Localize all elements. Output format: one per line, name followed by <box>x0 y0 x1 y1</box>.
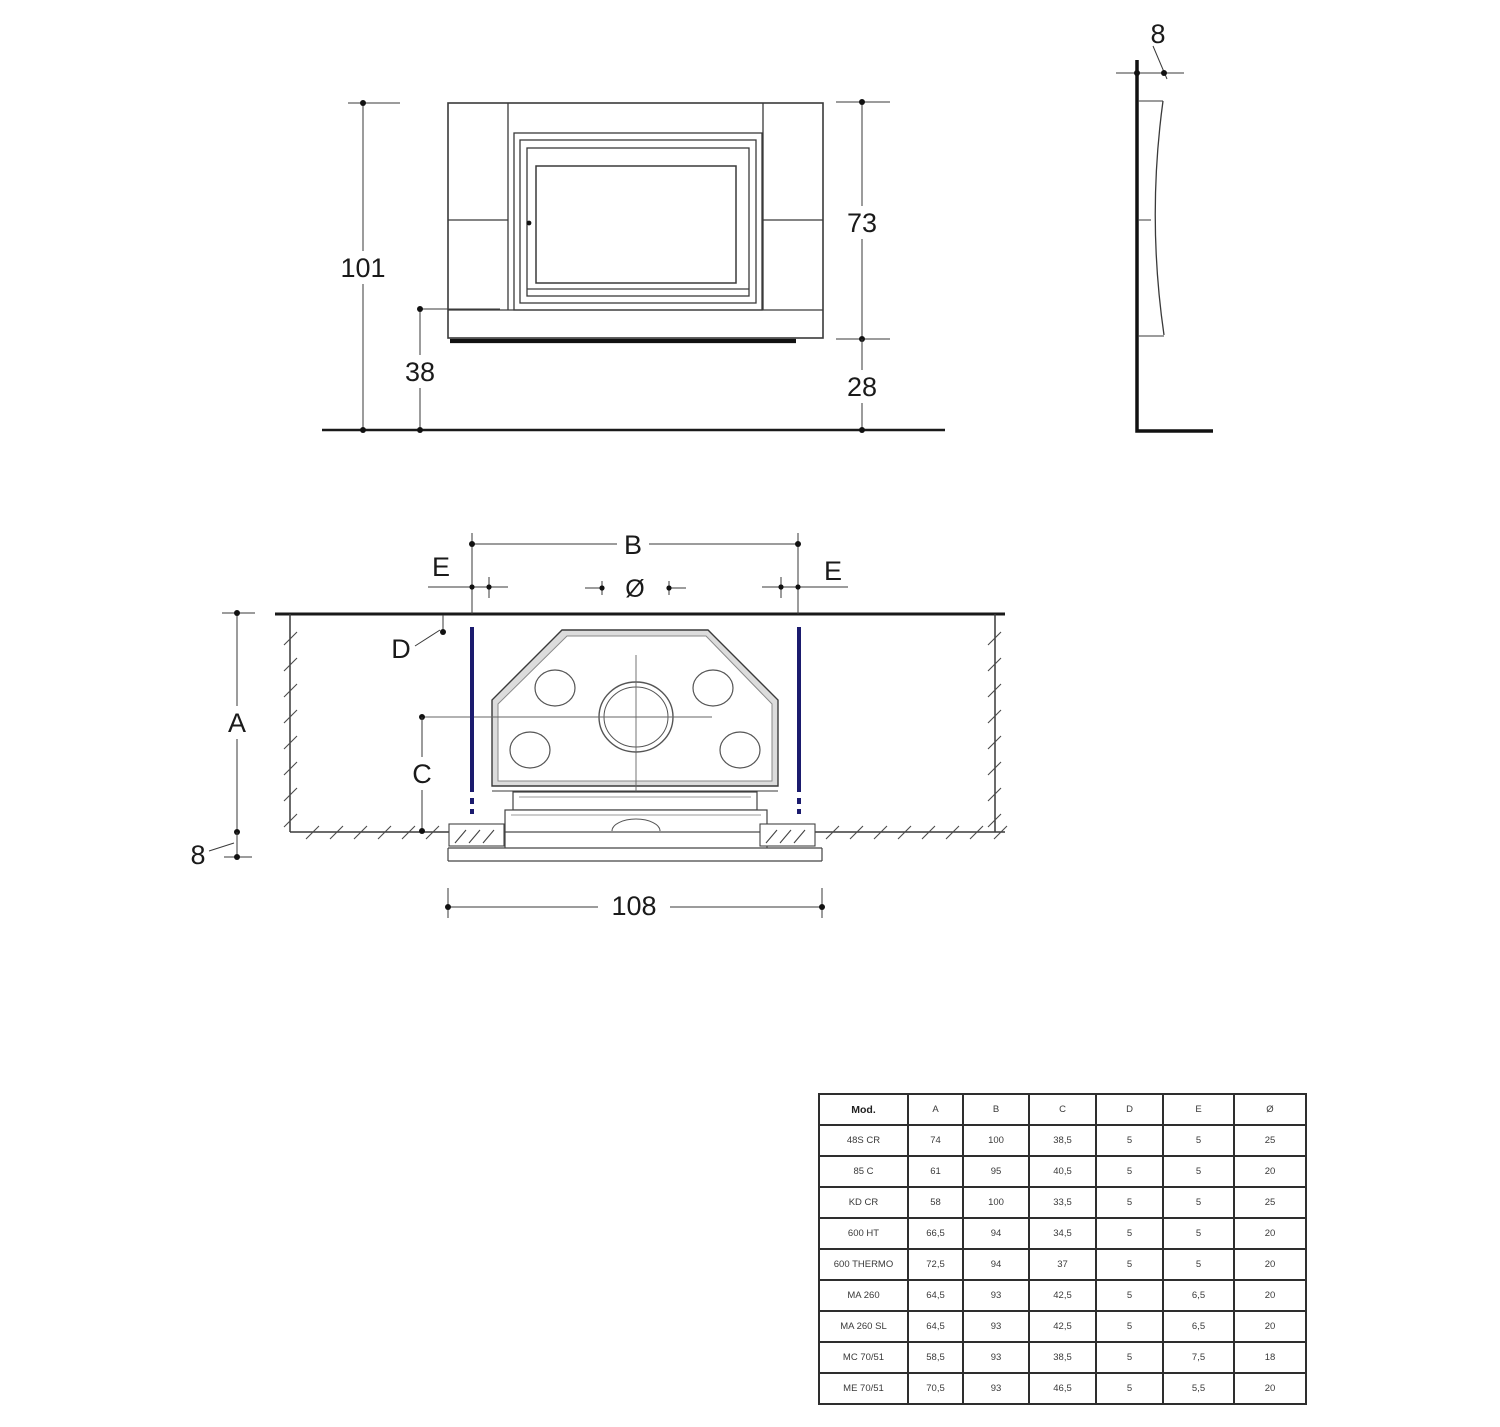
anchor-bracket-left <box>449 824 504 846</box>
dim-label-c: C <box>412 759 432 789</box>
table-row: 48S CR 74 100 38,5 5 5 25 <box>819 1125 1306 1156</box>
table-header-diameter: Ø <box>1234 1094 1306 1125</box>
table-cell: 6,5 <box>1163 1280 1234 1311</box>
dim-total-height: 101 <box>336 100 400 433</box>
table-row: MC 70/51 58,5 93 38,5 5 7,5 18 <box>819 1342 1306 1373</box>
table-cell: 5 <box>1163 1249 1234 1280</box>
table-cell: 20 <box>1234 1280 1306 1311</box>
table-row: MA 260 64,5 93 42,5 5 6,5 20 <box>819 1280 1306 1311</box>
table-cell: 93 <box>963 1373 1029 1404</box>
dim-label-insert-height: 73 <box>847 208 877 238</box>
table-cell: 5 <box>1096 1249 1163 1280</box>
table-row: 85 C 61 95 40,5 5 5 20 <box>819 1156 1306 1187</box>
table-cell: 100 <box>963 1125 1029 1156</box>
front-curve <box>1155 101 1164 335</box>
table-cell: 38,5 <box>1029 1125 1096 1156</box>
dim-e-left: E <box>428 552 508 598</box>
table-cell: 46,5 <box>1029 1373 1096 1404</box>
technical-drawing-page: 101 38 73 28 <box>0 0 1500 1427</box>
dim-label-base-height: 28 <box>847 372 877 402</box>
dim-base-height: 28 <box>839 339 885 433</box>
table-cell: 61 <box>908 1156 963 1187</box>
table-cell: 94 <box>963 1249 1029 1280</box>
table-cell: 72,5 <box>908 1249 963 1280</box>
table-cell: 94 <box>963 1218 1029 1249</box>
dim-label-wall-offset: 8 <box>1150 19 1165 49</box>
table-cell: 42,5 <box>1029 1311 1096 1342</box>
table-cell: 95 <box>963 1156 1029 1187</box>
table-cell: 20 <box>1234 1218 1306 1249</box>
dim-overall-width: 108 <box>445 888 825 923</box>
model-name: MA 260 SL <box>819 1311 908 1342</box>
dim-label-hearth-height: 38 <box>405 357 435 387</box>
table-cell: 20 <box>1234 1156 1306 1187</box>
dim-d: D <box>391 615 446 664</box>
table-row: 600 THERMO 72,5 94 37 5 5 20 <box>819 1249 1306 1280</box>
table-row: MA 260 SL 64,5 93 42,5 5 6,5 20 <box>819 1311 1306 1342</box>
table-cell: 100 <box>963 1187 1029 1218</box>
model-name: KD CR <box>819 1187 908 1218</box>
anchor-bracket-right <box>760 824 815 846</box>
model-name: 600 HT <box>819 1218 908 1249</box>
table-cell: 25 <box>1234 1187 1306 1218</box>
table-cell: 74 <box>908 1125 963 1156</box>
wall-right <box>770 614 1005 832</box>
table-row: 600 HT 66,5 94 34,5 5 5 20 <box>819 1218 1306 1249</box>
table-cell: 42,5 <box>1029 1280 1096 1311</box>
table-cell: 34,5 <box>1029 1218 1096 1249</box>
table-cell: 18 <box>1234 1342 1306 1373</box>
side-view: 8 <box>1116 19 1213 431</box>
dim-label-b: B <box>624 530 642 560</box>
dim-diameter: Ø <box>585 575 686 603</box>
table-cell: 93 <box>963 1311 1029 1342</box>
dim-wall-thickness: 8 <box>190 832 252 870</box>
table-cell: 5 <box>1096 1125 1163 1156</box>
dim-label-d: D <box>391 634 411 664</box>
model-name: 600 THERMO <box>819 1249 908 1280</box>
table-cell: 5 <box>1163 1218 1234 1249</box>
table-cell: 5 <box>1096 1280 1163 1311</box>
dim-label-e-right: E <box>824 556 842 586</box>
model-name: 48S CR <box>819 1125 908 1156</box>
table-header-b: B <box>963 1094 1029 1125</box>
dim-label-a: A <box>228 708 246 738</box>
front-view: 101 38 73 28 <box>322 99 945 433</box>
table-cell: 25 <box>1234 1125 1306 1156</box>
table-cell: 93 <box>963 1342 1029 1373</box>
table-cell: 93 <box>963 1280 1029 1311</box>
table-cell: 20 <box>1234 1249 1306 1280</box>
table-cell: 20 <box>1234 1311 1306 1342</box>
table-cell: 58 <box>908 1187 963 1218</box>
table-cell: 40,5 <box>1029 1156 1096 1187</box>
model-dimensions-table: Mod. A B C D E Ø 48S CR 74 100 38,5 5 5 … <box>818 1093 1307 1405</box>
model-name: MC 70/51 <box>819 1342 908 1373</box>
table-cell: 5 <box>1096 1156 1163 1187</box>
table-cell: 38,5 <box>1029 1342 1096 1373</box>
dim-wall-offset: 8 <box>1116 19 1184 79</box>
table-cell: 66,5 <box>908 1218 963 1249</box>
table-header-d: D <box>1096 1094 1163 1125</box>
table-cell: 5 <box>1163 1156 1234 1187</box>
table-header-a: A <box>908 1094 963 1125</box>
table-cell: 5,5 <box>1163 1373 1234 1404</box>
table-cell: 5 <box>1096 1373 1163 1404</box>
table-cell: 33,5 <box>1029 1187 1096 1218</box>
plan-view: B E E Ø D <box>190 528 1007 923</box>
table-row: ME 70/51 70,5 93 46,5 5 5,5 20 <box>819 1373 1306 1404</box>
table-header-c: C <box>1029 1094 1096 1125</box>
dim-e-right: E <box>762 556 848 598</box>
dim-c: C <box>406 717 438 834</box>
model-name: ME 70/51 <box>819 1373 908 1404</box>
dim-label-total-height: 101 <box>340 253 385 283</box>
table-header-e: E <box>1163 1094 1234 1125</box>
wall-profile <box>1137 60 1213 431</box>
door-handle <box>527 221 532 226</box>
table-cell: 5 <box>1096 1187 1163 1218</box>
table-cell: 5 <box>1096 1342 1163 1373</box>
firebox-frame <box>514 133 762 310</box>
firebox-glass <box>536 166 736 283</box>
table-cell: 5 <box>1096 1311 1163 1342</box>
table-cell: 64,5 <box>908 1311 963 1342</box>
table-cell: 58,5 <box>908 1342 963 1373</box>
model-name: 85 C <box>819 1156 908 1187</box>
table-row: KD CR 58 100 33,5 5 5 25 <box>819 1187 1306 1218</box>
model-name: MA 260 <box>819 1280 908 1311</box>
dim-label-e-left: E <box>432 552 450 582</box>
dim-a: A <box>221 610 255 835</box>
table-cell: 5 <box>1163 1125 1234 1156</box>
table-header-mod: Mod. <box>819 1094 908 1125</box>
table-header-row: Mod. A B C D E Ø <box>819 1094 1306 1125</box>
table-cell: 5 <box>1096 1218 1163 1249</box>
table-cell: 20 <box>1234 1373 1306 1404</box>
table-cell: 7,5 <box>1163 1342 1234 1373</box>
table-cell: 6,5 <box>1163 1311 1234 1342</box>
dim-label-wall-thickness: 8 <box>190 840 205 870</box>
dim-label-overall-width: 108 <box>611 891 656 921</box>
table-cell: 37 <box>1029 1249 1096 1280</box>
table-cell: 70,5 <box>908 1373 963 1404</box>
mantel-legs <box>448 103 823 310</box>
table-cell: 5 <box>1163 1187 1234 1218</box>
dim-label-diameter: Ø <box>625 575 644 603</box>
table-cell: 64,5 <box>908 1280 963 1311</box>
dim-insert-height: 73 <box>836 99 890 342</box>
